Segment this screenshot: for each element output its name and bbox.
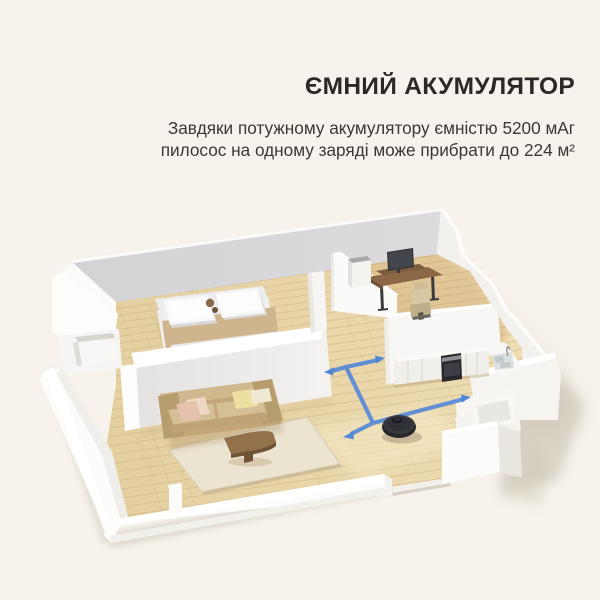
svg-text:ЄМНИЙ АКУМУЛЯТОР: ЄМНИЙ АКУМУЛЯТОР	[305, 72, 575, 100]
svg-text:пилосос на одному заряді може: пилосос на одному заряді може прибрати д…	[161, 140, 576, 160]
svg-text:Завдяки потужному акумулятору: Завдяки потужному акумулятору ємністю 52…	[168, 118, 575, 138]
